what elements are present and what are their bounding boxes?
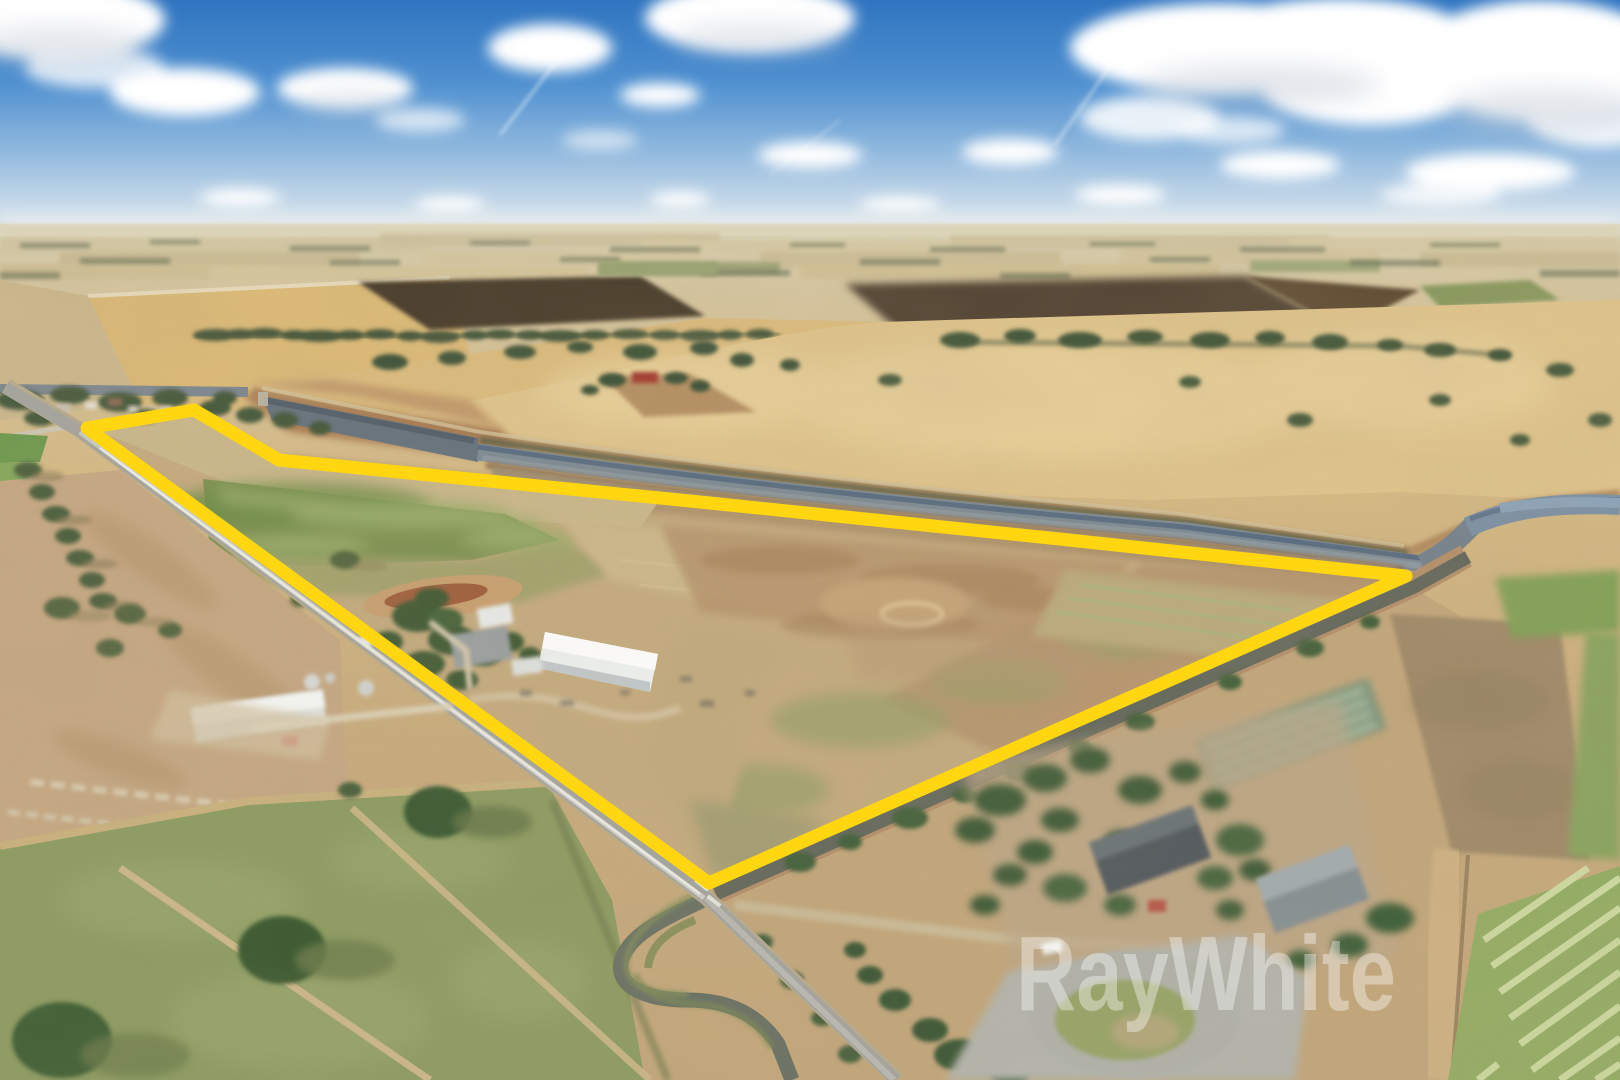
svg-text:RayWhite: RayWhite (1016, 915, 1396, 1033)
